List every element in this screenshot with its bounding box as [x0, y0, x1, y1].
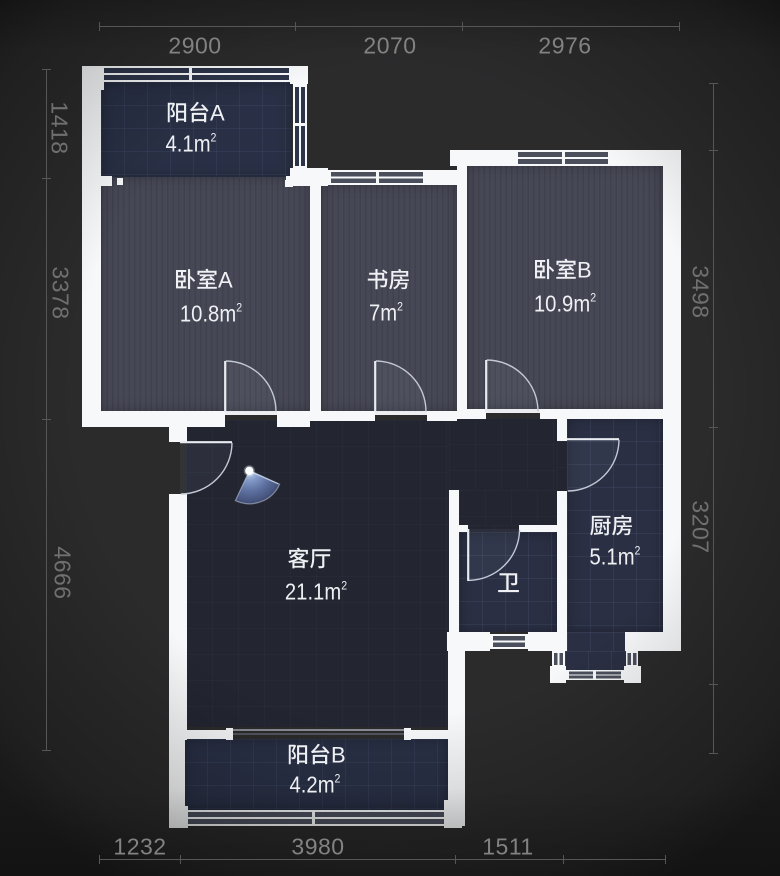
svg-text:B: B [331, 743, 346, 768]
svg-text:B: B [577, 258, 592, 283]
svg-text:A: A [218, 268, 233, 293]
svg-text:A: A [210, 101, 225, 126]
